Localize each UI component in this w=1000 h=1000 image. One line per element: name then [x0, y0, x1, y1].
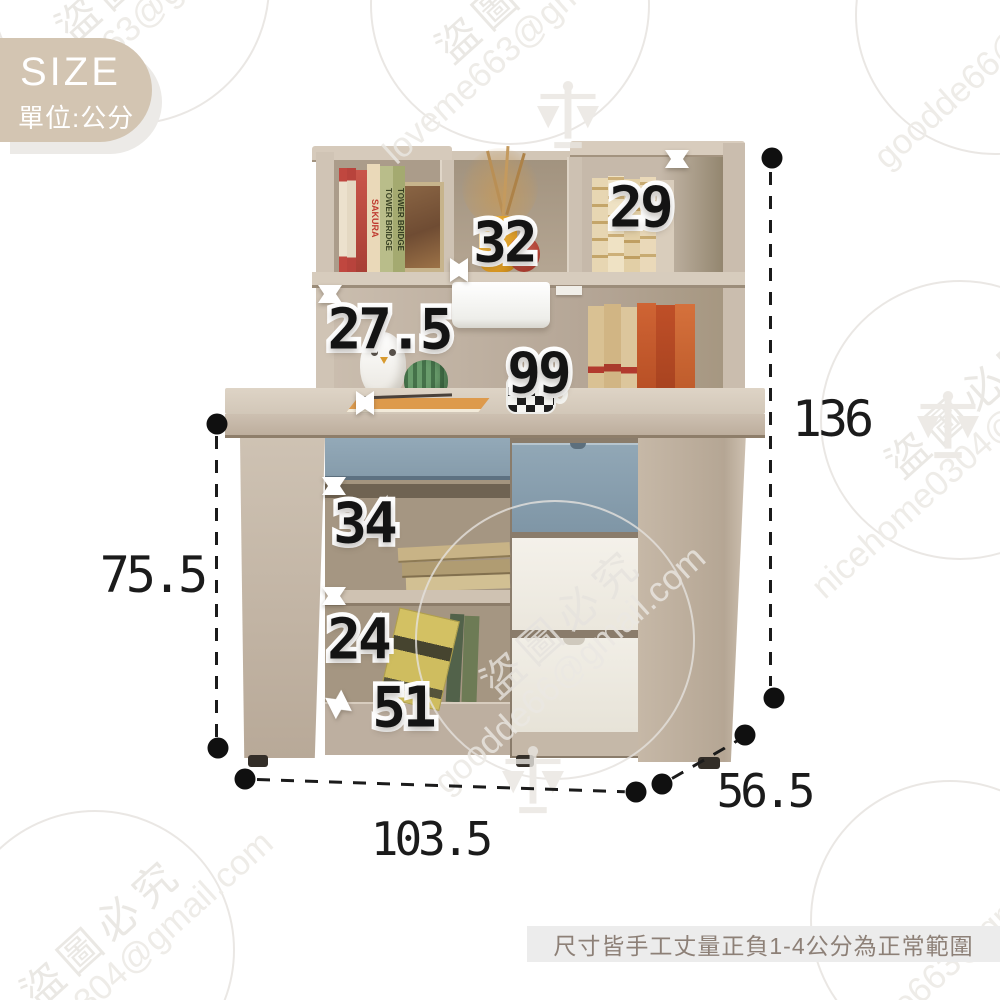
watermark-notice: 盜圖必究	[0, 834, 202, 1000]
dim-label-overall-height: 136	[792, 390, 870, 448]
dimension-endpoint	[762, 148, 783, 169]
watermark-tile: loveme663@gmail.com	[790, 770, 1000, 1000]
dim-label-right-shelf-height: 29	[609, 176, 670, 241]
product-dimension-image: SAKURA TOWER BRIDGE TOWER BRIDGE	[0, 0, 1000, 1000]
measurement-note-text: 尺寸皆手工丈量正負1-4公分為正常範圍	[553, 927, 973, 961]
watermark-email: nicehome0304@gmail.com	[0, 818, 287, 1000]
watermark-email: nicehome0304@gmail.com	[798, 288, 1000, 612]
book-spine	[637, 303, 656, 398]
desk-right-panel	[638, 432, 746, 762]
watermark-tile: 盜圖必究 nicehome0304@gmail.com	[0, 800, 275, 1000]
dim-label-hutch-opening-height: 27.5	[328, 298, 451, 363]
dim-label-shelf-depth: 51	[372, 676, 433, 741]
dimension-endpoint	[207, 414, 228, 435]
watermark-tile: 盜圖必究 nicehome0304@gmail.com	[800, 270, 1000, 630]
book-spine	[604, 304, 621, 398]
dim-label-overall-depth: 56.5	[717, 764, 812, 818]
watermark-circle	[370, 0, 650, 145]
dim-label-desktop-width: 99	[507, 342, 568, 407]
dim-label-mid-shelf-width: 32	[473, 211, 534, 276]
dim-label-upper-opening-height: 34	[333, 492, 394, 557]
desk-left-panel	[240, 438, 325, 758]
book-spine-tower-bridge-2: TOWER BRIDGE	[393, 166, 405, 272]
size-badge-title: SIZE	[20, 50, 121, 95]
size-badge-unit: 單位:公分	[18, 98, 134, 135]
book-spine	[588, 306, 604, 398]
green-book	[462, 616, 480, 702]
pencil-drawer	[325, 438, 510, 480]
dimension-line-overall-height	[769, 172, 772, 686]
size-badge: SIZE 單位:公分	[0, 38, 152, 142]
dimension-endpoint	[764, 688, 785, 709]
desk-foot	[516, 755, 534, 767]
book-spine	[339, 168, 347, 272]
book-spine	[347, 168, 356, 272]
watermark-tile: goodde66@gmail.com	[835, 0, 1000, 225]
book-spine-tower-bridge: TOWER BRIDGE	[380, 166, 393, 272]
watermark-notice: 盜圖必究	[863, 304, 1000, 497]
drawer-base-rail	[512, 732, 638, 756]
dim-label-lower-opening-height: 24	[327, 608, 388, 673]
drawer-white-handle-notch	[563, 638, 585, 645]
tissue-box	[452, 282, 550, 328]
measurement-note-bar: 尺寸皆手工丈量正負1-4公分為正常範圍	[527, 926, 1000, 962]
wall-bracket	[556, 286, 582, 295]
book-spine	[592, 178, 608, 272]
drawer-white-top	[512, 538, 638, 630]
dimension-line-overall-width	[257, 778, 625, 793]
book-spine	[356, 170, 367, 272]
drawer-blue	[512, 443, 638, 532]
watermark-circle	[855, 0, 1000, 155]
book-spine	[621, 307, 637, 398]
dim-label-desk-height: 75.5	[100, 546, 204, 604]
drawer-white-bottom	[512, 638, 638, 732]
balance-scale-icon	[905, 385, 991, 471]
watermark-email: loveme663@gmail.com	[788, 788, 1000, 1000]
watermark-circle	[0, 810, 235, 1000]
dim-label-overall-width: 103.5	[371, 812, 489, 866]
dimension-endpoint	[735, 725, 756, 746]
desk-shelf-board	[325, 590, 510, 606]
dimension-endpoint	[235, 769, 256, 790]
dimension-line-desk-height	[215, 436, 218, 738]
book-spine	[656, 305, 675, 398]
dimension-endpoint	[626, 782, 647, 803]
watermark-circle	[810, 780, 1000, 1000]
hutch-top-board-right	[570, 141, 745, 157]
watermark-notice: 盜圖必究	[413, 0, 617, 82]
watermark-email: goodde66@gmail.com	[833, 0, 1000, 207]
book-spine-sakura: SAKURA	[367, 164, 380, 272]
hutch-divider-right	[567, 157, 582, 274]
desktop-front-edge	[225, 414, 765, 438]
book-spine	[675, 304, 695, 398]
desk-foot	[248, 755, 268, 767]
dimension-endpoint	[652, 774, 673, 795]
dimension-endpoint	[208, 738, 229, 759]
